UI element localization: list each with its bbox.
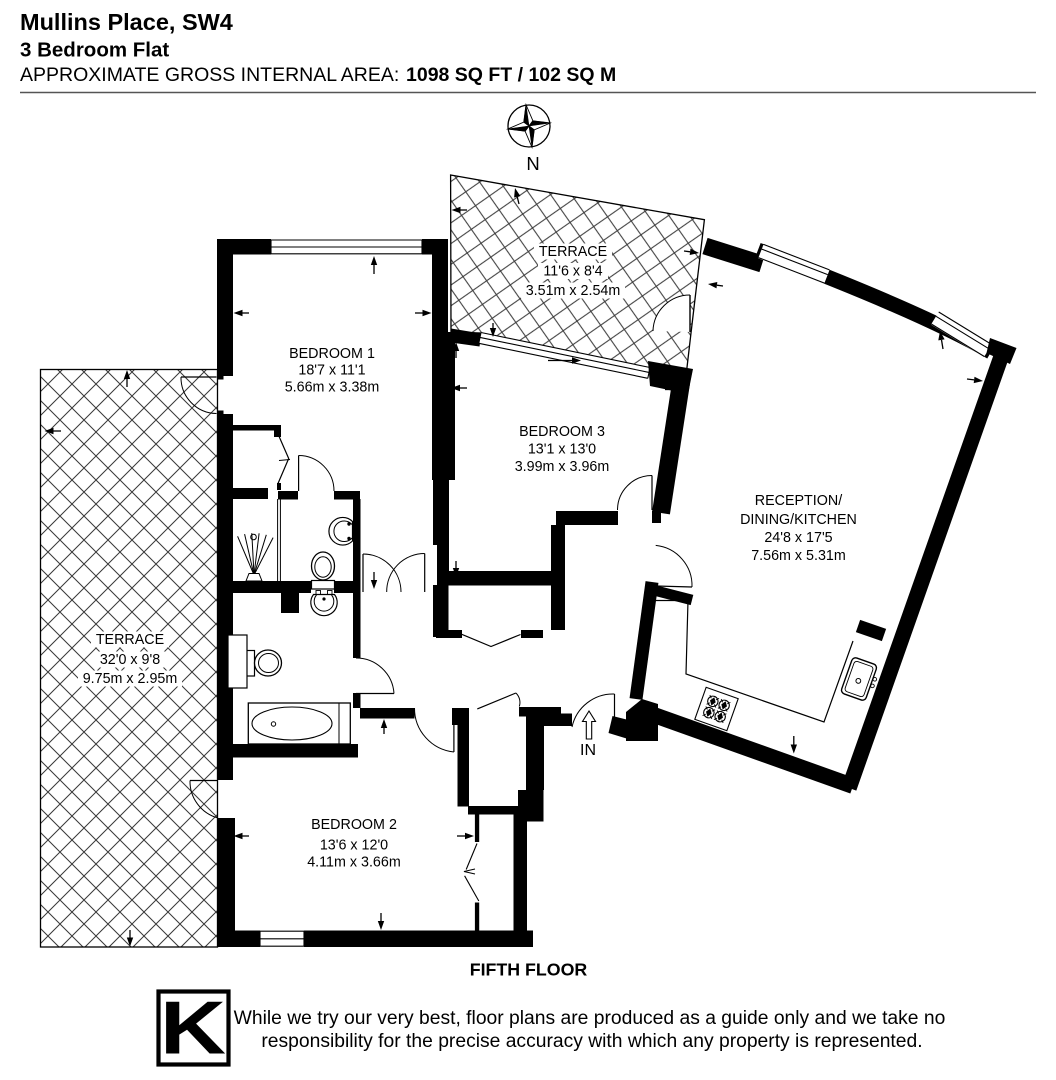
svg-text:11'6 x 8'4: 11'6 x 8'4: [543, 264, 602, 280]
svg-text:3.99m x 3.96m: 3.99m x 3.96m: [515, 459, 610, 475]
svg-text:4.11m x 3.66m: 4.11m x 3.66m: [307, 855, 401, 871]
svg-text:IN: IN: [580, 742, 596, 759]
svg-text:RECEPTION/: RECEPTION/: [755, 493, 842, 509]
svg-text:5.66m x 3.38m: 5.66m x 3.38m: [285, 380, 380, 396]
svg-text:7.56m x 5.31m: 7.56m x 5.31m: [751, 548, 846, 564]
svg-text:TERRACE: TERRACE: [539, 244, 607, 260]
svg-text:Mullins Place, SW4: Mullins Place, SW4: [20, 9, 233, 35]
svg-text:DINING/KITCHEN: DINING/KITCHEN: [740, 512, 857, 528]
svg-text:BEDROOM 1: BEDROOM 1: [289, 346, 375, 362]
svg-text:32'0 x 9'8: 32'0 x 9'8: [100, 652, 160, 668]
svg-text:While we try our very best, fl: While we try our very best, floor plans …: [234, 1008, 946, 1029]
svg-text:TERRACE: TERRACE: [96, 632, 164, 648]
svg-text:13'1 x 13'0: 13'1 x 13'0: [528, 442, 596, 458]
svg-text:BEDROOM 3: BEDROOM 3: [519, 424, 605, 440]
svg-text:responsibility for the precise: responsibility for the precise accuracy …: [261, 1031, 922, 1052]
svg-text:24'8 x 17'5: 24'8 x 17'5: [764, 530, 832, 546]
svg-text:13'6 x 12'0: 13'6 x 12'0: [320, 838, 388, 854]
svg-text:N: N: [526, 153, 539, 174]
svg-text:K: K: [160, 986, 226, 1070]
svg-text:18'7 x 11'1: 18'7 x 11'1: [298, 363, 365, 379]
svg-text:APPROXIMATE GROSS INTERNAL ARE: APPROXIMATE GROSS INTERNAL AREA:1098 SQ …: [20, 64, 616, 86]
svg-text:FIFTH FLOOR: FIFTH FLOOR: [470, 960, 588, 980]
svg-text:BEDROOM 2: BEDROOM 2: [311, 817, 397, 833]
svg-text:3 Bedroom Flat: 3 Bedroom Flat: [20, 39, 169, 62]
svg-text:3.51m x 2.54m: 3.51m x 2.54m: [526, 283, 621, 299]
svg-text:9.75m x 2.95m: 9.75m x 2.95m: [83, 671, 178, 687]
